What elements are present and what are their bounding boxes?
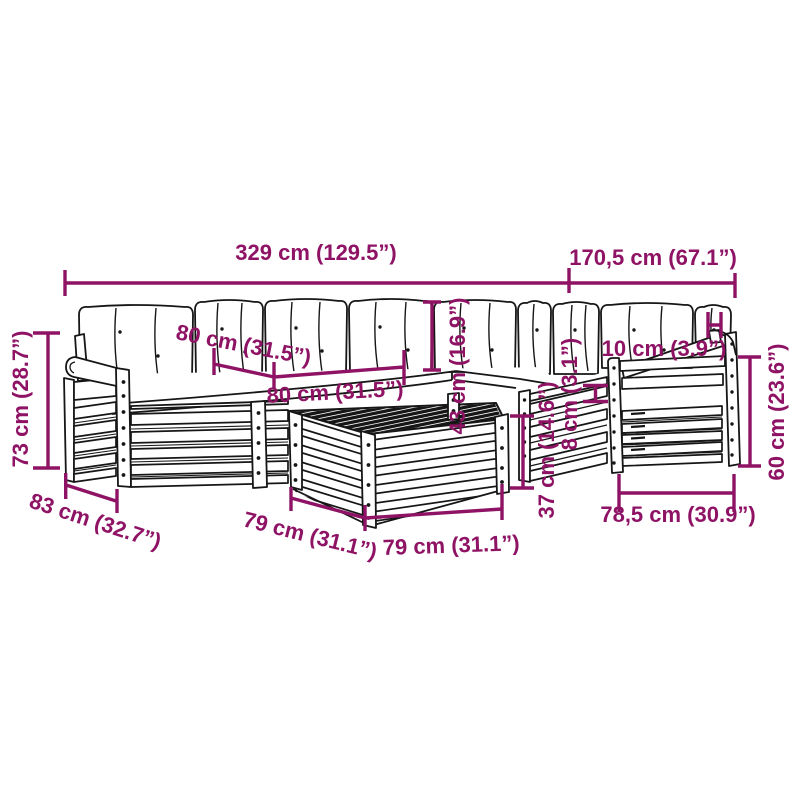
svg-text:73 cm (28.7”): 73 cm (28.7”) (8, 331, 33, 468)
svg-text:8 cm (3.1”): 8 cm (3.1”) (557, 338, 582, 451)
svg-text:37 cm (14.6”): 37 cm (14.6”) (534, 382, 559, 519)
svg-text:10 cm (3.9”): 10 cm (3.9”) (602, 336, 727, 361)
svg-text:78,5 cm (30.9”): 78,5 cm (30.9”) (600, 502, 755, 527)
svg-text:43 cm (16.9”): 43 cm (16.9”) (445, 298, 470, 435)
svg-text:60 cm (23.6”): 60 cm (23.6”) (764, 344, 789, 481)
svg-text:79 cm (31.1”): 79 cm (31.1”) (382, 530, 520, 560)
svg-text:329 cm (129.5”): 329 cm (129.5”) (235, 240, 396, 265)
svg-text:170,5 cm (67.1”): 170,5 cm (67.1”) (569, 245, 737, 270)
